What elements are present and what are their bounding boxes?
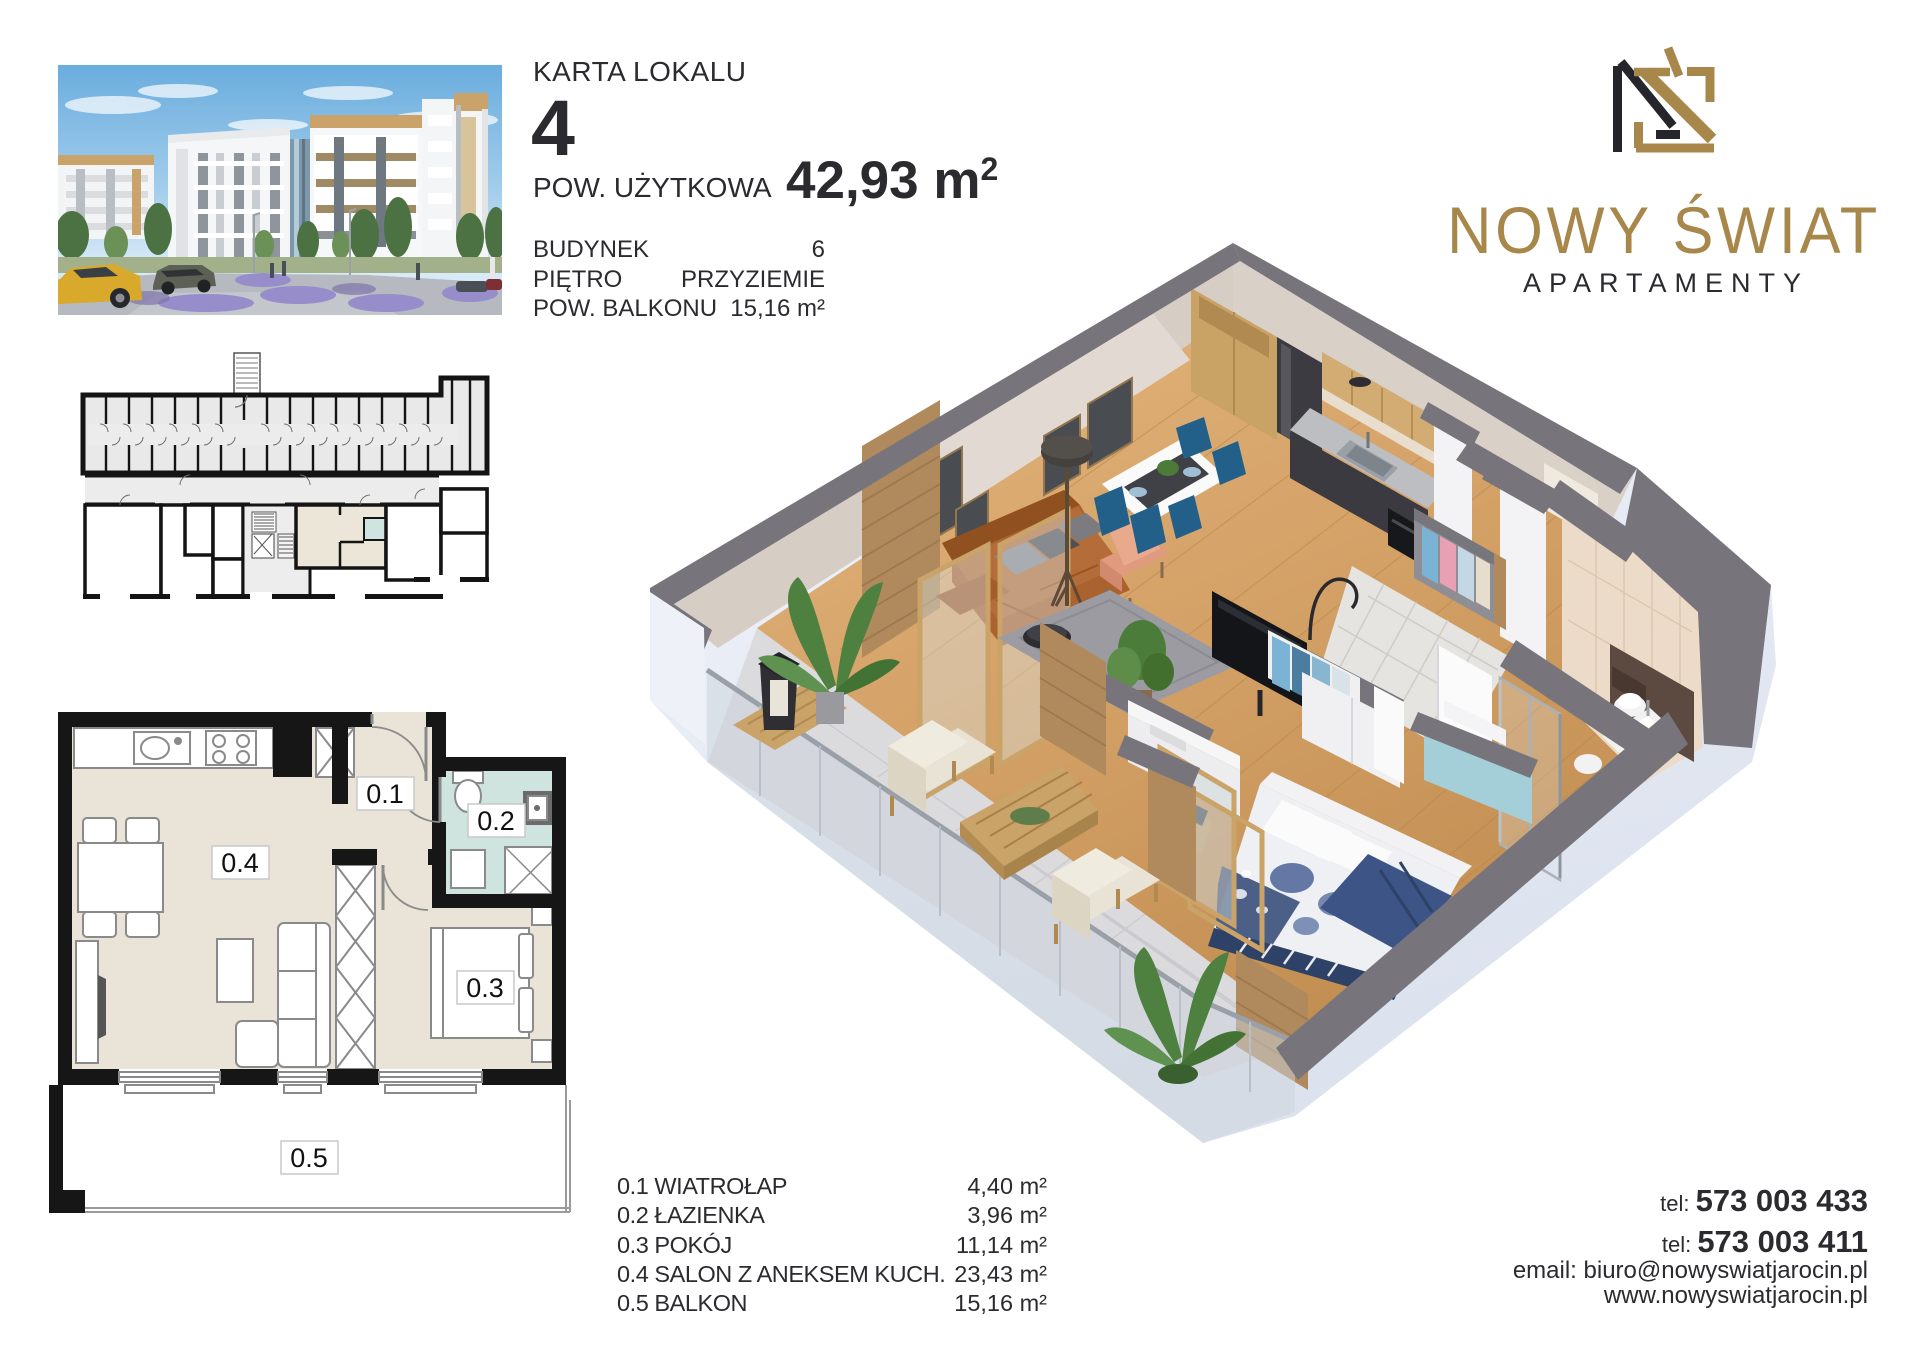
svg-text:0.4: 0.4 — [221, 848, 259, 878]
svg-text:0.3: 0.3 — [466, 973, 504, 1003]
svg-text:0.2: 0.2 — [477, 806, 515, 836]
svg-text:0.1: 0.1 — [366, 779, 404, 809]
svg-text:0.5: 0.5 — [290, 1143, 328, 1173]
